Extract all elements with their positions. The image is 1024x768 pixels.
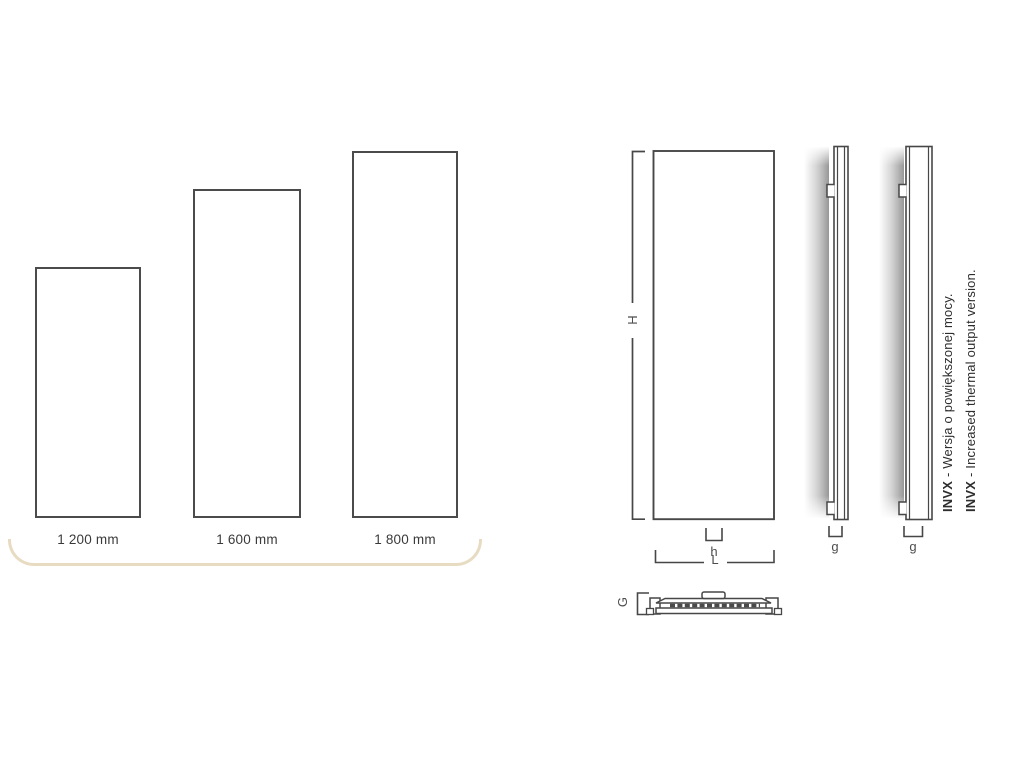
top-view: [638, 592, 782, 615]
depth-bracket-standard: [829, 526, 842, 537]
dim-g-label-invx: g: [902, 539, 924, 555]
wall-clip-top: [827, 185, 835, 198]
connection-bracket: [706, 528, 722, 541]
wall-clip-top: [899, 185, 907, 198]
height-bracket: [633, 152, 646, 520]
dim-H-label: H: [625, 309, 641, 331]
bottom-plate: [656, 608, 772, 614]
note-invx-english: INVX - Increased thermal output version.: [963, 269, 979, 512]
end-cap-step-left: [647, 609, 654, 615]
note-text: - Wersja o powiększonej mocy.: [940, 293, 955, 481]
wall-clip-bottom: [899, 502, 907, 515]
front-view: [654, 151, 775, 519]
side-view-invx: [879, 147, 932, 537]
side-view-standard: [804, 147, 848, 537]
note-prefix: INVX: [940, 481, 955, 512]
depth-bracket-invx: [904, 526, 923, 537]
dim-g-label-standard: g: [824, 539, 846, 555]
radiator-spec-diagram: 1 200 mm 1 600 mm 1 800 mm: [0, 0, 1024, 768]
dimension-drawing: [0, 0, 1024, 768]
dim-G-label: G: [615, 591, 631, 613]
wall-clip-bottom: [827, 502, 835, 515]
wall-shade: [879, 147, 904, 518]
dim-L-label: L: [704, 552, 726, 568]
note-text: - Increased thermal output version.: [963, 269, 978, 481]
end-cap-step-right: [775, 609, 782, 615]
vent-bump: [702, 592, 725, 599]
note-invx-polish: INVX - Wersja o powiększonej mocy.: [940, 293, 956, 512]
wall-shade: [804, 147, 829, 518]
note-prefix: INVX: [963, 481, 978, 512]
